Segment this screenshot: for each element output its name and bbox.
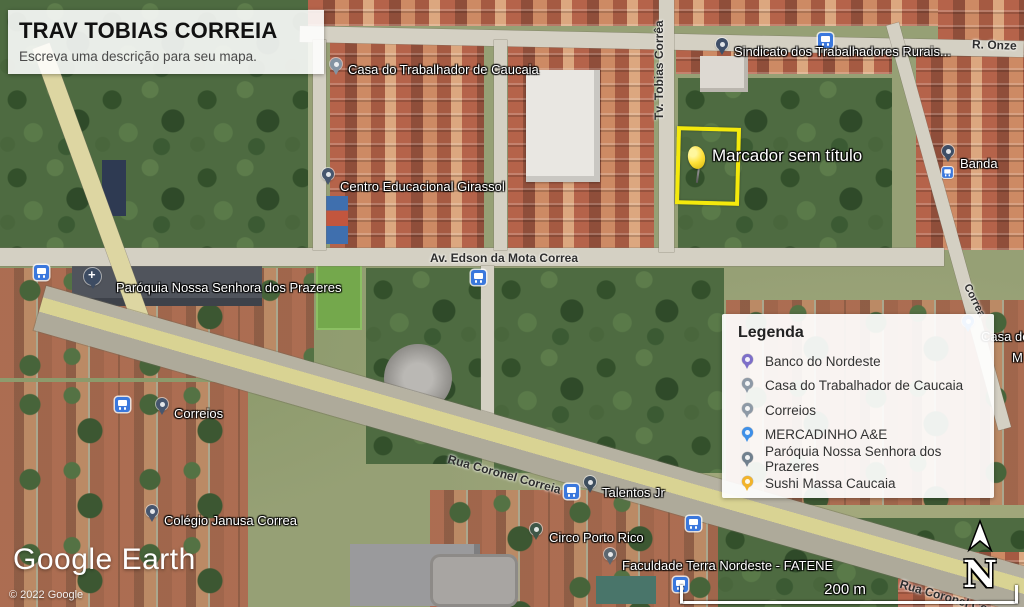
street-label-av-edson: Av. Edson da Mota Correa (430, 251, 578, 265)
copyright-text: © 2022 Google (9, 589, 83, 601)
map-title-card: TRAV TOBIAS CORREIA Escreva uma descriçã… (8, 10, 324, 74)
bus-stop-icon[interactable] (686, 516, 701, 531)
circus-tent (430, 554, 518, 607)
place-pin-girassol[interactable] (322, 168, 334, 180)
scale-bar-tick (680, 585, 683, 603)
legend-item[interactable]: Banco do Nordeste (738, 349, 994, 374)
scale-bar-label: 200 m (800, 581, 890, 598)
sindicato-building (700, 56, 748, 92)
bus-stop-icon[interactable] (942, 167, 953, 178)
place-pin-talentos[interactable] (584, 476, 596, 488)
legend-item[interactable]: Casa do Trabalhador de Caucaia (738, 374, 994, 399)
legend-panel: Legenda Banco do Nordeste Casa do Trabal… (722, 314, 994, 498)
bus-stop-icon[interactable] (471, 270, 486, 285)
place-label-paroquia[interactable]: Paróquia Nossa Senhora dos Prazeres (116, 280, 341, 295)
map-description-placeholder[interactable]: Escreva uma descrição para seu mapa. (19, 49, 313, 64)
place-pin-icon (742, 476, 753, 487)
legend-item[interactable]: Correios (738, 398, 994, 423)
map-title[interactable]: TRAV TOBIAS CORREIA (19, 18, 313, 44)
place-pin-banda[interactable] (942, 145, 954, 157)
place-pin-icon (742, 452, 753, 463)
place-pin-fatene[interactable] (604, 548, 616, 560)
compass-north-label: N (958, 552, 1002, 596)
legend-heading: Legenda (738, 324, 994, 342)
place-label-correios[interactable]: Correios (174, 406, 223, 421)
bus-stop-icon[interactable] (34, 265, 49, 280)
place-pin-correios[interactable] (156, 398, 168, 410)
place-label-girassol[interactable]: Centro Educacional Girassol (340, 179, 505, 194)
place-label-colegio[interactable]: Colégio Janusa Correa (164, 513, 297, 528)
place-label-talentos[interactable]: Talentos Jr (602, 485, 665, 500)
place-pin-icon (742, 403, 753, 414)
place-pin-icon (742, 427, 753, 438)
place-label-sindicato[interactable]: Sindicato dos Trabalhadores Rurais... (734, 44, 951, 59)
street-label-tv-tobias: Tv. Tobias Corrêa (652, 20, 666, 120)
place-pin-circo[interactable] (530, 523, 542, 535)
legend-item-label: MERCADINHO A&E (765, 427, 887, 442)
legend-item[interactable]: Paróquia Nossa Senhora dos Prazeres (738, 447, 994, 472)
north-compass: N (958, 519, 1002, 591)
legend-item[interactable]: Sushi Massa Caucaia (738, 472, 994, 497)
bus-stop-icon[interactable] (564, 484, 579, 499)
place-pin-icon (742, 378, 753, 389)
place-pin-colegio[interactable] (146, 505, 158, 517)
place-pin-icon (742, 354, 753, 365)
place-pin-sindicato[interactable] (716, 38, 728, 50)
legend-item-label: Banco do Nordeste (765, 354, 881, 369)
legend-item-label: Correios (765, 403, 816, 418)
pushpin-marker-icon[interactable] (686, 145, 712, 191)
marker-label[interactable]: Marcador sem título (712, 146, 862, 166)
fatene-building (596, 576, 656, 604)
map-canvas[interactable]: Tv. Tobias Corrêa Av. Edson da Mota Corr… (0, 0, 1024, 607)
place-label-fatene[interactable]: Faculdade Terra Nordeste - FATENE (622, 558, 833, 573)
place-label-casa-trabalhador[interactable]: Casa do Trabalhador de Caucaia (348, 62, 539, 77)
church-icon[interactable] (84, 268, 101, 285)
bus-stop-icon[interactable] (115, 397, 130, 412)
google-earth-logo: Google Earth (13, 543, 196, 577)
scale-bar-line (680, 601, 1018, 604)
pushpin-head (686, 144, 707, 170)
legend-item-label: Sushi Massa Caucaia (765, 476, 896, 491)
legend-item-label: Casa do Trabalhador de Caucaia (765, 378, 963, 393)
place-label-mercadinho-partial[interactable]: M (1012, 350, 1023, 365)
legend-item-label: Paróquia Nossa Senhora dos Prazeres (765, 444, 994, 474)
scale-bar-tick (1015, 585, 1018, 603)
street-label-r-onze: R. Onze (972, 37, 1017, 53)
place-label-circo[interactable]: Circo Porto Rico (549, 530, 644, 545)
place-pin-casa-trabalhador[interactable] (330, 58, 342, 70)
terrain-houses (938, 0, 1024, 42)
large-white-building (526, 70, 600, 182)
place-label-banda[interactable]: Banda (960, 156, 998, 171)
north-arrow-icon (958, 519, 1002, 553)
